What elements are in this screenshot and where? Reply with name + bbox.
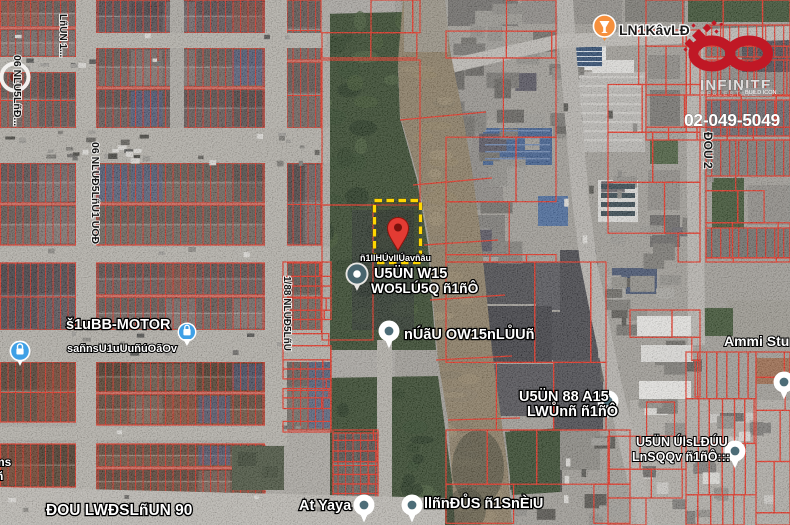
svg-text:ñ: ñ	[0, 469, 3, 483]
svg-text:ÐOU 2: ÐOU 2	[701, 132, 715, 169]
svg-text:U5ÜN ÚlsLÐÚU: U5ÜN ÚlsLÐÚU	[636, 434, 728, 449]
svg-text:LN1KâvLÐ: LN1KâvLÐ	[619, 22, 690, 38]
svg-text:ÐOU LWÐSLñUN 90: ÐOU LWÐSLñUN 90	[46, 502, 192, 519]
svg-text:Ammi Stu: Ammi Stu	[724, 333, 789, 349]
svg-text:llñnÐŮS ñ1SnÈlU: llñnÐŮS ñ1SnÈlU	[424, 493, 543, 512]
svg-text:At Yaya: At Yaya	[299, 498, 352, 514]
svg-text:sañnsU1uUuñúOãOv: sañnsU1uUuñúOãOv	[67, 343, 178, 355]
svg-text:š1uBB-MOTOR: š1uBB-MOTOR	[66, 317, 171, 333]
svg-text:R E A L E S T A T E: R E A L E S T A T E	[700, 91, 757, 98]
svg-text:06 NĿUÐ5LñU1 UОÐ: 06 NĿUÐ5LñU1 UОÐ	[89, 142, 101, 245]
svg-text:06 NĿU5LñÐ...: 06 NĿU5LñÐ...	[11, 55, 23, 126]
svg-text:ms: ms	[0, 455, 12, 469]
svg-text:LnSQQv ñ1ñÔ:::: LnSQQv ñ1ñÔ:::	[632, 449, 730, 464]
svg-text:LWŮnñ ñ1ñÔ: LWŮnñ ñ1ñÔ	[527, 401, 618, 420]
svg-text:U5ÜN 88 A15: U5ÜN 88 A15	[519, 388, 609, 405]
svg-text:02-049-5049: 02-049-5049	[684, 110, 781, 130]
svg-text:ñ1llHÚvllÚavñâu: ñ1llHÚvllÚavñâu	[360, 252, 431, 263]
svg-text:nÚãU OW15nLŮUñ: nÚãU OW15nLŮUñ	[404, 324, 535, 343]
svg-text:LñUN 1...: LñUN 1...	[57, 14, 68, 58]
svg-text:U5ÜN W15: U5ÜN W15	[374, 265, 447, 282]
svg-text:1/88 NĿUÐ5LñU: 1/88 NĿUÐ5LñU	[281, 276, 292, 351]
svg-text:WO5LÚ5Q ñ1ñÔ: WO5LÚ5Q ñ1ñÔ	[371, 279, 479, 296]
